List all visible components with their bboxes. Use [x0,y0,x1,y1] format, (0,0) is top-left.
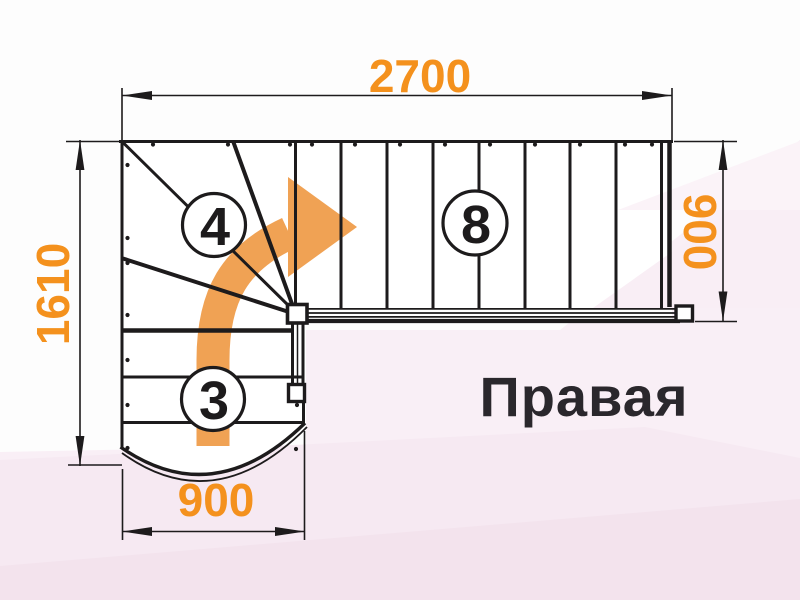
newel-post-lower [289,385,305,402]
newel-post-corner [288,305,308,324]
dimension-bottom-label: 900 [178,477,255,523]
stair-plan-drawing: 2700 1610 900 900 4 8 3 Правая [0,0,800,600]
upper-flight-step-count: 8 [461,198,491,252]
dimension-top-label: 2700 [369,53,471,99]
railing-end-cap [676,306,693,321]
dimension-left-label: 1610 [30,243,76,345]
dimension-right-label: 900 [677,194,723,271]
lower-flight-step-count: 3 [199,374,229,428]
winder-step-count: 4 [200,200,230,254]
plan-title: Правая [479,369,688,425]
